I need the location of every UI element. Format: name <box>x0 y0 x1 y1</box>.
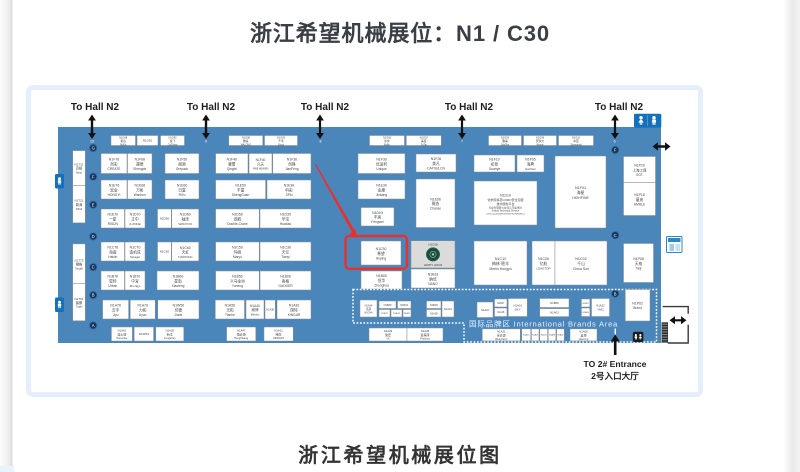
svg-text:中亚: 中亚 <box>573 139 579 143</box>
svg-text:Honembe: Honembe <box>116 336 128 340</box>
svg-text:To Hall N2: To Hall N2 <box>301 102 350 113</box>
svg-text:Huabao: Huabao <box>280 222 292 226</box>
svg-text:素飞: 素飞 <box>170 139 176 143</box>
svg-text:C: C <box>92 265 95 270</box>
svg-text:N1C60: N1C60 <box>180 246 191 250</box>
svg-text:海典: 海典 <box>527 161 535 166</box>
svg-text:精东: 精东 <box>276 331 282 336</box>
svg-text:恒华: 恒华 <box>378 278 386 283</box>
svg-text:LEADTOP: LEADTOP <box>536 266 550 270</box>
svg-text:天虹: 天虹 <box>182 250 190 255</box>
svg-text:N1C65: N1C65 <box>160 250 170 254</box>
svg-text:阁驰: 阁驰 <box>178 161 186 166</box>
svg-text:Wanbon: Wanbon <box>134 193 146 197</box>
svg-text:力拓: 力拓 <box>139 307 147 312</box>
svg-text:HONGYI: HONGYI <box>108 193 121 197</box>
svg-text:正中: 正中 <box>131 216 139 221</box>
svg-text:优适利: 优适利 <box>376 161 387 166</box>
svg-text:N1A30: N1A30 <box>289 304 300 308</box>
svg-text:N1G62: N1G62 <box>143 139 153 143</box>
svg-text:To Hall N2: To Hall N2 <box>595 102 644 113</box>
svg-text:奥博: 奥博 <box>580 333 586 338</box>
svg-text:中宜: 中宜 <box>131 278 139 283</box>
svg-text:雅多: 雅多 <box>243 139 249 143</box>
svg-text:FuTai: FuTai <box>421 144 427 146</box>
svg-text:SINA: SINA <box>76 207 83 211</box>
svg-text:Uyun: Uyun <box>139 313 147 317</box>
svg-text:玛姚: 玛姚 <box>234 249 242 254</box>
svg-text:N1B76: N1B76 <box>107 275 118 279</box>
svg-text:Tngiki: Tngiki <box>76 305 83 309</box>
svg-text:N1F50: N1F50 <box>177 158 187 162</box>
svg-text:F: F <box>92 174 95 179</box>
svg-text:China Sun: China Sun <box>573 267 589 271</box>
svg-text:N1E50: N1E50 <box>235 184 246 188</box>
svg-text:希望: 希望 <box>377 251 385 256</box>
svg-text:Xiaoteng: Xiaoteng <box>172 284 185 288</box>
svg-text:诺基: 诺基 <box>366 307 372 311</box>
svg-text:N1A13: N1A13 <box>532 334 539 337</box>
svg-text:Tsngiki: Tsngiki <box>75 266 83 270</box>
svg-text:Tianhe: Tianhe <box>225 313 235 317</box>
svg-text:SKY: SKY <box>515 308 521 312</box>
svg-text:N1A07: N1A07 <box>557 334 563 337</box>
svg-text:KEWASH: KEWASH <box>273 336 284 340</box>
svg-text:丰富: 丰富 <box>237 187 245 192</box>
svg-text:馨蕾: 馨蕾 <box>228 161 236 166</box>
svg-text:YMC: YMC <box>597 308 605 312</box>
svg-text:CAPSULCN: CAPSULCN <box>427 166 445 170</box>
svg-text:ShengGuan: ShengGuan <box>232 193 250 197</box>
svg-text:N1A70: N1A70 <box>137 304 148 308</box>
svg-text:Zhonghua: Zhonghua <box>374 283 389 287</box>
svg-text:橙格: 橙格 <box>76 261 83 266</box>
svg-text:N1F26: N1F26 <box>431 157 441 161</box>
svg-text:N1B29: N1B29 <box>430 303 438 307</box>
svg-text:TO 2# Entrance: TO 2# Entrance <box>584 359 647 369</box>
svg-text:N1F76: N1F76 <box>109 158 119 162</box>
svg-text:N1C08: N1C08 <box>428 243 438 247</box>
svg-text:CREATE: CREATE <box>108 167 122 171</box>
svg-text:N1B32: N1B32 <box>381 313 388 315</box>
svg-text:Probeca: Probeca <box>420 337 430 341</box>
svg-text:GAOGER: GAOGER <box>278 284 293 288</box>
svg-text:Double-Crane: Double-Crane <box>227 222 247 226</box>
svg-text:N1D50: N1D50 <box>232 213 243 217</box>
svg-text:N1F68: N1F68 <box>135 158 145 162</box>
svg-text:HMRLE: HMRLE <box>634 202 646 206</box>
svg-text:万彬: 万彬 <box>136 187 144 192</box>
svg-text:Z-ZONE: Z-ZONE <box>129 222 140 226</box>
svg-text:Guanye: Guanye <box>489 167 501 171</box>
svg-text:Zhongyi: Zhongyi <box>130 284 141 288</box>
svg-text:N1D65: N1D65 <box>160 217 170 221</box>
svg-text:N1A50: N1A50 <box>225 304 236 308</box>
svg-text:N1C70: N1C70 <box>130 246 141 250</box>
svg-text:微态: 微态 <box>432 201 440 206</box>
svg-text:Hoping: Hoping <box>376 256 386 260</box>
svg-text:RiYu: RiYu <box>179 193 186 197</box>
svg-text:海曲: 海曲 <box>109 249 117 254</box>
svg-text:Merlin Hongyu: Merlin Hongyu <box>489 267 511 271</box>
svg-text:Wosdy: Wosdy <box>536 144 544 146</box>
svg-text:吉宇: 吉宇 <box>112 307 120 312</box>
svg-text:天格: 天格 <box>635 261 643 266</box>
svg-text:晟德: 晟德 <box>136 161 144 166</box>
svg-text:N1E68: N1E68 <box>134 184 145 188</box>
svg-text:米养源: 米养源 <box>497 333 506 338</box>
svg-text:安永大: 安永大 <box>536 139 545 143</box>
svg-text:N1B08: N1B08 <box>550 301 559 305</box>
svg-text:Grepack: Grepack <box>176 167 189 171</box>
svg-text:To Hall N2: To Hall N2 <box>71 102 120 113</box>
svg-text:佳德: 佳德 <box>175 307 183 312</box>
svg-text:N1E76: N1E76 <box>109 184 120 188</box>
svg-text:美度: 美度 <box>421 139 427 143</box>
svg-text:恒必康: 恒必康 <box>237 331 246 336</box>
svg-text:Weibo: Weibo <box>251 313 260 317</box>
svg-text:Urban: Urban <box>108 284 117 288</box>
svg-text:N1B30: N1B30 <box>384 303 392 307</box>
svg-text:N1E70: N1E70 <box>107 213 118 217</box>
svg-text:Chanse: Chanse <box>430 207 441 211</box>
svg-text:天和: 天和 <box>226 307 234 312</box>
svg-text:和达: 和达 <box>120 139 126 143</box>
svg-text:E: E <box>92 202 95 207</box>
svg-text:Qianrong: Qianrong <box>579 339 589 341</box>
svg-text:国际品牌区 International Brands Are: 国际品牌区 International Brands Area <box>469 319 618 329</box>
svg-text:雅美: 雅美 <box>502 139 508 143</box>
svg-text:N1D70: N1D70 <box>130 213 141 217</box>
svg-text:N1A40: N1A40 <box>250 304 260 308</box>
svg-text:N1F46: N1F46 <box>227 158 237 162</box>
svg-text:美凡: 美凡 <box>432 161 440 166</box>
svg-text:造机成: 造机成 <box>129 249 140 254</box>
svg-text:NINE HEAVEN: NINE HEAVEN <box>253 167 269 170</box>
svg-text:N1C06: N1C06 <box>538 257 549 261</box>
svg-text:Bhutylcusm: Bhutylcusm <box>495 338 507 341</box>
svg-text:创彩: 创彩 <box>110 161 118 166</box>
svg-text:凡天: 凡天 <box>257 163 264 167</box>
svg-text:YK: YK <box>386 337 390 341</box>
svg-text:N1B60: N1B60 <box>173 275 184 279</box>
svg-text:To Hall N2: To Hall N2 <box>187 102 236 113</box>
svg-text:N1F36: N1F36 <box>287 158 297 162</box>
svg-text:F: F <box>614 148 617 153</box>
svg-text:G: G <box>92 146 95 151</box>
svg-text:N1F10: N1F10 <box>489 158 499 162</box>
svg-text:爱美康: 爱美康 <box>420 332 429 337</box>
svg-text:天亿: 天亿 <box>282 249 290 254</box>
svg-text:袖泽: 袖泽 <box>182 216 190 221</box>
svg-text:N1P20: N1P20 <box>634 164 645 168</box>
svg-text:BuBu: BuBu <box>384 144 390 146</box>
svg-text:Jiyu: Jiyu <box>113 313 119 317</box>
svg-text:Haizhen: Haizhen <box>525 167 536 171</box>
svg-text:A: A <box>92 323 95 328</box>
svg-text:Eqval: Eqval <box>278 144 284 146</box>
svg-text:国特: 国特 <box>290 307 298 312</box>
svg-text:N1B17: N1B17 <box>497 303 505 305</box>
svg-text:TIANHONG: TIANHONG <box>178 255 193 259</box>
svg-text:N1B31: N1B31 <box>400 303 408 307</box>
svg-text:N1C50: N1C50 <box>232 246 243 250</box>
svg-text:B: B <box>92 293 95 298</box>
svg-text:N1B00: N1B00 <box>376 274 387 278</box>
svg-text:8: 8 <box>320 140 322 144</box>
svg-text:N1A03: N1A03 <box>550 311 559 315</box>
svg-text:童迪: 童迪 <box>636 197 644 202</box>
svg-text:7: 7 <box>461 140 463 144</box>
svg-text:新丰: 新丰 <box>167 331 173 336</box>
svg-text:N1P08: N1P08 <box>633 257 644 261</box>
svg-text:10: 10 <box>90 140 94 144</box>
svg-text:Safety Technical Service: Safety Technical Service <box>492 208 520 212</box>
svg-text:Unique: Unique <box>376 167 386 171</box>
svg-text:GvkjTen: GvkjTen <box>501 144 510 146</box>
svg-text:义乌金洲: 义乌金洲 <box>230 278 245 283</box>
svg-text:N1A24: N1A24 <box>444 307 452 311</box>
svg-text:Maryo: Maryo <box>233 255 242 259</box>
svg-text:2号入口大厅: 2号入口大厅 <box>591 370 639 381</box>
svg-text:N1F30: N1F30 <box>376 158 386 162</box>
svg-text:Qinglei: Qinglei <box>227 167 237 171</box>
svg-text:上海工煤: 上海工煤 <box>633 167 647 172</box>
svg-text:N1A15: N1A15 <box>523 334 530 337</box>
svg-text:xmWestquad123MNOZNGBTTSQTWNK/B: xmWestquad123MNOZNGBTTSQTWNK/Baun <box>486 212 525 215</box>
svg-text:N1W53: N1W53 <box>139 332 149 336</box>
svg-text:6: 6 <box>614 140 616 144</box>
svg-text:KINGAR: KINGAR <box>288 313 301 317</box>
svg-text:N1B50: N1B50 <box>232 275 243 279</box>
svg-text:WALONG: WALONG <box>241 143 251 146</box>
svg-text:N1A09: N1A09 <box>549 334 555 337</box>
svg-text:CyGMow: CyGMow <box>168 144 178 146</box>
svg-text:星南: 星南 <box>174 278 182 283</box>
svg-text:Tianyi: Tianyi <box>281 255 290 259</box>
svg-text:金康: 金康 <box>378 187 386 192</box>
svg-text:建朗: 建朗 <box>76 300 83 305</box>
svg-text:N1E60: N1E60 <box>177 184 188 188</box>
svg-text:Haixin: Haixin <box>108 255 117 259</box>
svg-text:C: C <box>614 233 617 238</box>
svg-text:N1E30: N1E30 <box>376 184 387 188</box>
svg-text:N1C30: N1C30 <box>376 247 387 251</box>
svg-text:N1A38: N1A38 <box>266 308 274 312</box>
svg-text:科彩: 科彩 <box>285 187 293 192</box>
svg-text:N1A05: N1A05 <box>582 311 589 314</box>
svg-text:N1W50: N1W50 <box>173 304 185 308</box>
svg-text:恩帅: 恩帅 <box>109 278 117 283</box>
svg-text:HengXikang: HengXikang <box>234 336 248 340</box>
svg-text:N1A76: N1A76 <box>110 304 121 308</box>
svg-text:NUOVA: NUOVA <box>364 311 373 314</box>
svg-text:N1B06: N1B06 <box>280 275 291 279</box>
svg-text:日富: 日富 <box>178 187 186 192</box>
svg-text:D: D <box>92 234 95 239</box>
svg-text:宏金: 宏金 <box>110 187 118 192</box>
svg-text:初显: 初显 <box>491 161 499 166</box>
svg-text:威博: 威博 <box>252 307 259 312</box>
svg-text:技术服务平台: 技术服务平台 <box>496 201 514 206</box>
svg-text:To Hall N2: To Hall N2 <box>445 102 494 113</box>
svg-text:N1A27: N1A27 <box>404 312 411 315</box>
svg-text:N1A20: N1A20 <box>481 308 489 312</box>
svg-text:千禾: 千禾 <box>278 139 284 143</box>
svg-text:9: 9 <box>205 140 207 144</box>
svg-text:N1D03: N1D03 <box>372 211 383 215</box>
svg-text:N1F05: N1F05 <box>525 158 535 162</box>
svg-text:华宝: 华宝 <box>282 216 290 221</box>
svg-text:N1P02: N1P02 <box>632 302 643 306</box>
svg-text:步步: 步步 <box>384 139 390 143</box>
svg-text:丰高: 丰高 <box>374 215 382 220</box>
svg-text:N1C36: N1C36 <box>280 246 291 250</box>
svg-text:HAPPY HOUR: HAPPY HOUR <box>424 263 442 267</box>
svg-text:Zonovarick: Zonovarick <box>570 144 582 146</box>
svg-text:N1E38: N1E38 <box>284 184 295 188</box>
svg-text:梅林·肥羊: 梅林·肥羊 <box>492 261 509 266</box>
svg-text:N1A11: N1A11 <box>541 334 547 337</box>
svg-text:Sinagel: Sinagel <box>130 255 140 259</box>
svg-text:N1E06: N1E06 <box>430 197 441 201</box>
svg-text:N1B18: N1B18 <box>428 273 439 277</box>
svg-text:一星: 一星 <box>109 216 117 221</box>
svg-text:双鹤: 双鹤 <box>234 216 242 221</box>
svg-text:RuiDa: RuiDa <box>120 144 127 146</box>
svg-text:NANO: NANO <box>428 282 438 286</box>
svg-text:佳士康: 佳士康 <box>117 331 126 336</box>
svg-text:海星: 海星 <box>577 190 585 195</box>
svg-text:Yuneng: Yuneng <box>232 284 243 288</box>
svg-text:亿航: 亿航 <box>540 261 548 266</box>
svg-text:N1D60: N1D60 <box>180 213 191 217</box>
svg-text:N1F40: N1F40 <box>256 158 266 162</box>
svg-text:Fengwei: Fengwei <box>371 220 384 224</box>
svg-text:高格: 高格 <box>282 278 290 283</box>
svg-text:创锋: 创锋 <box>288 161 296 166</box>
svg-text:Shengde: Shengde <box>133 167 146 171</box>
svg-text:RISUN: RISUN <box>108 222 119 226</box>
svg-text:Jiade: Jiade <box>175 313 183 317</box>
svg-text:N1A28: N1A28 <box>430 311 438 315</box>
svg-text:hdnu: hdnu <box>76 171 83 175</box>
svg-text:N1B07: N1B07 <box>582 303 589 305</box>
svg-text:JianFeng: JianFeng <box>285 167 299 171</box>
svg-text:N1B33: N1B33 <box>393 313 400 315</box>
svg-text:Fengshan: Fengshan <box>164 336 176 340</box>
svg-text:N1D35: N1D35 <box>280 213 291 217</box>
svg-text:俊宏: 俊宏 <box>385 332 391 337</box>
svg-text:SPlu: SPlu <box>286 193 293 197</box>
svg-text:千山: 千山 <box>577 261 585 266</box>
svg-text:Brand: Brand <box>633 306 642 310</box>
svg-text:B: B <box>614 291 617 296</box>
svg-text:Taiji: Taiji <box>636 266 642 270</box>
svg-text:WANYOO: WANYOO <box>178 222 192 226</box>
svg-text:HIGHFINE: HIGHFINE <box>572 196 589 200</box>
svg-text:N1A18: N1A18 <box>497 311 505 314</box>
svg-text:纳优: 纳优 <box>429 276 437 281</box>
svg-text:N1B70: N1B70 <box>130 275 141 279</box>
svg-text:N1P18: N1P18 <box>634 193 645 197</box>
svg-text:SGT: SGT <box>636 173 643 177</box>
svg-text:N1C76: N1C76 <box>107 246 118 250</box>
svg-text:Jinkang: Jinkang <box>376 193 387 197</box>
